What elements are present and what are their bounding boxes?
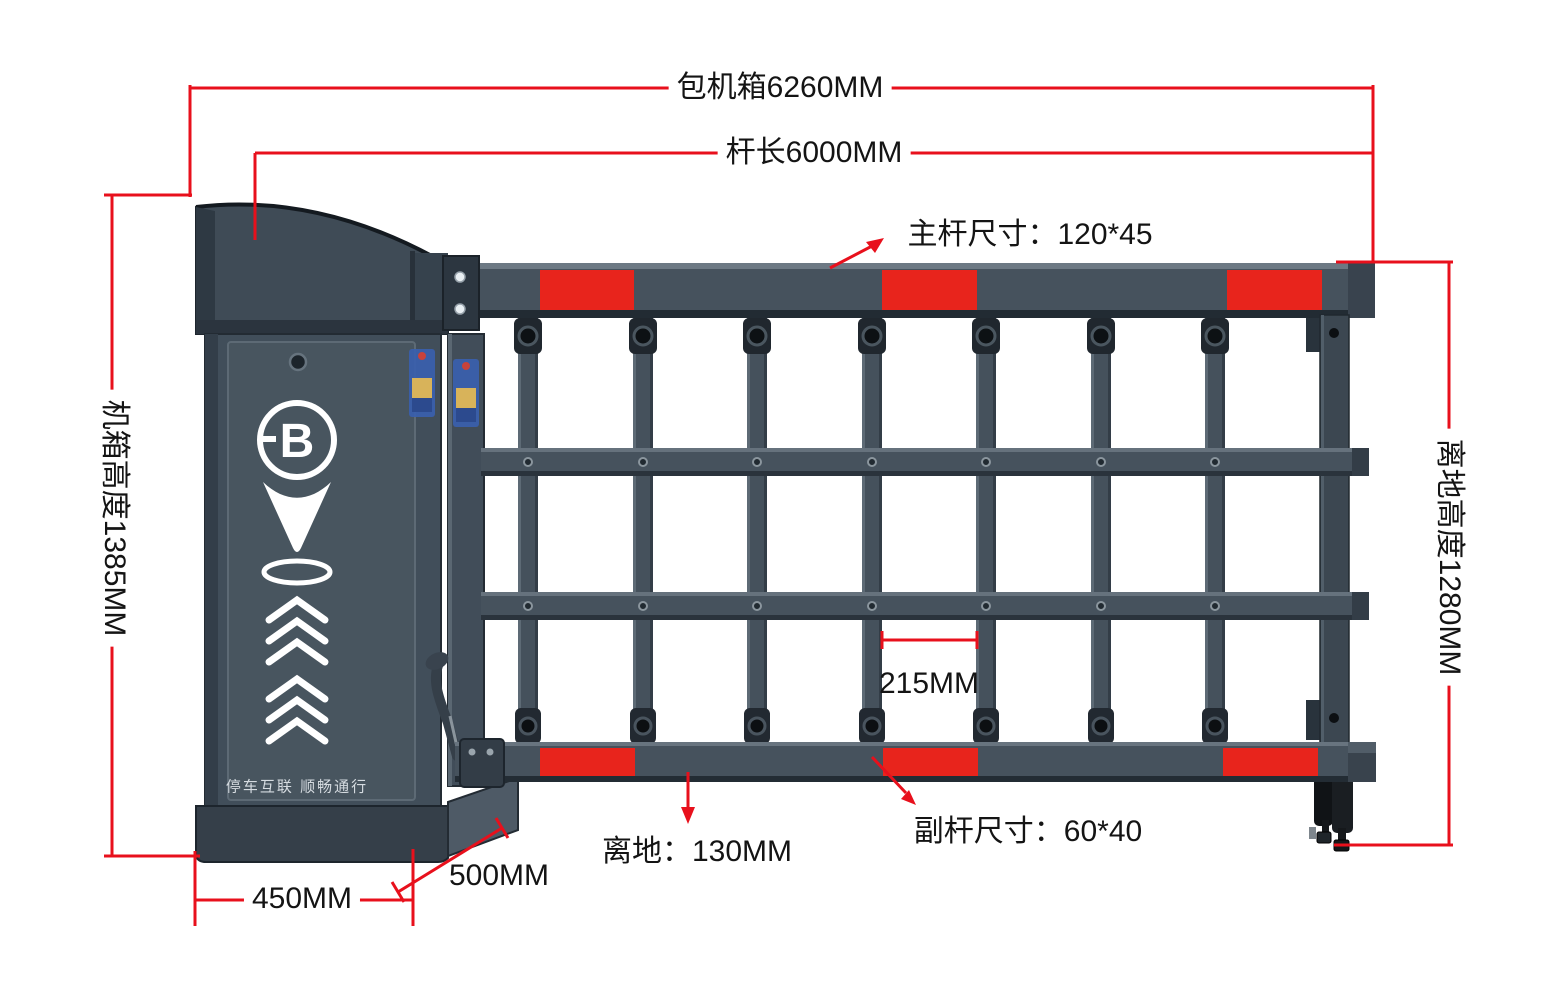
brand-sticker (409, 349, 435, 417)
logo-letter: B (280, 415, 315, 468)
support-feet (1309, 776, 1353, 851)
reflective-stripe (540, 748, 635, 776)
brand-sticker (453, 359, 479, 427)
dim-label-cabinet-width: 450MM (244, 882, 360, 916)
reflective-stripe (883, 748, 978, 776)
dim-picket-gap-line (882, 631, 977, 649)
fence-pickets (514, 318, 1229, 744)
reflective-stripe (1227, 270, 1322, 310)
picket (1201, 318, 1229, 744)
diagram-canvas: B (0, 0, 1544, 1000)
keyhole-icon (290, 354, 306, 370)
rail (481, 592, 1369, 620)
dim-label-arm-length: 杆长6000MM (718, 136, 911, 170)
picket (1087, 318, 1115, 744)
dim-label-cabinet-height: 机箱高度1385MM (97, 390, 131, 647)
callout-label-ground-clearance: 离地：130MM (600, 835, 794, 869)
reflective-stripe (1223, 748, 1318, 776)
sub-arm-connector (460, 739, 504, 787)
picket (629, 318, 657, 744)
callout-label-main-arm-size: 主杆尺寸：120*45 (905, 218, 1154, 252)
barrier-gate: B (196, 204, 1376, 862)
cabinet-slogan: 停车互联 顺畅通行 (226, 776, 368, 797)
middle-rails (481, 448, 1369, 620)
picket (743, 318, 771, 744)
sub-arm (455, 739, 1376, 787)
dim-label-cabinet-depth: 500MM (447, 859, 551, 893)
reflective-stripe (882, 270, 977, 310)
dim-label-clearance-height: 离地高度1280MM (1432, 429, 1466, 686)
dim-label-overall-length: 包机箱6260MM (669, 71, 892, 105)
dim-label-picket-gap: 215MM (877, 667, 981, 701)
picket (514, 318, 542, 744)
main-arm (443, 256, 1375, 330)
rail (481, 448, 1369, 476)
callout-label-sub-arm-size: 副杆尺寸：60*40 (912, 815, 1144, 849)
cabinet-hood (196, 204, 448, 334)
reflective-stripe (540, 270, 634, 310)
arm-bracket (443, 256, 479, 330)
